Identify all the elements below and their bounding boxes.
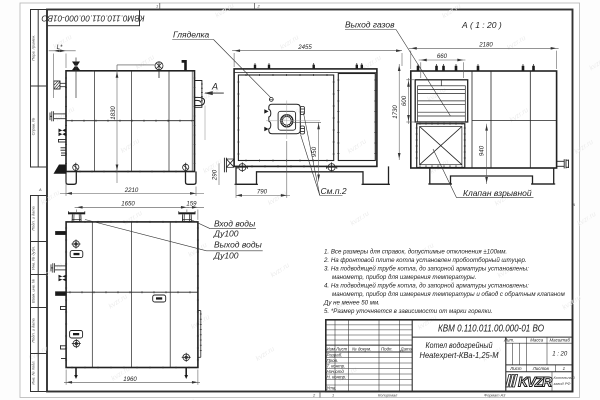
svg-text:290: 290 — [211, 169, 218, 181]
svg-text:660: 660 — [437, 53, 448, 60]
svg-text:Выход газов: Выход газов — [345, 20, 395, 30]
svg-text:См.п.2: См.п.2 — [321, 186, 347, 196]
svg-text:Справ. №: Справ. № — [31, 117, 36, 135]
svg-text:1: 1 — [332, 392, 334, 397]
svg-text:600: 600 — [401, 95, 408, 106]
svg-text:Гляделка: Гляделка — [173, 30, 210, 40]
svg-text:А: А — [211, 82, 218, 92]
svg-text:1650: 1650 — [121, 201, 135, 208]
svg-text:Перв. примен.: Перв. примен. — [31, 35, 36, 61]
svg-text:5. *Размер уточняется в зависи: 5. *Размер уточняется в зависимости от м… — [324, 308, 493, 315]
svg-text:940: 940 — [479, 145, 486, 156]
svg-text:1: 1 — [156, 4, 158, 9]
svg-text:Подп. и дата: Подп. и дата — [31, 317, 36, 342]
svg-text:159: 159 — [186, 201, 197, 208]
svg-text:Лист: Лист — [335, 346, 348, 351]
svg-text:Листов: Листов — [532, 366, 550, 371]
svg-text:Копировал: Копировал — [378, 392, 398, 397]
svg-text:2180: 2180 — [478, 42, 493, 49]
svg-text:Клапан взрывной: Клапан взрывной — [463, 188, 532, 198]
svg-text:Изм: Изм — [327, 346, 335, 351]
svg-text:А: А — [38, 187, 42, 192]
svg-text:Heatexpert-КВа-1,25-М: Heatexpert-КВа-1,25-М — [420, 351, 499, 360]
svg-text:Подп. и дата: Подп. и дата — [31, 205, 36, 230]
svg-text:Лист: Лист — [509, 366, 522, 371]
svg-text:Масса: Масса — [530, 338, 544, 343]
svg-text:Котельный: Котельный — [554, 375, 576, 380]
svg-text:КВМ 0.110.011.00.000-01 ВО: КВМ 0.110.011.00.000-01 ВО — [438, 324, 544, 335]
svg-text:Взам. инв. №: Взам. инв. № — [31, 278, 36, 303]
svg-text:манометр, прибор для измерения: манометр, прибор для измерения температу… — [332, 291, 566, 298]
svg-text:Ду не менее 50 мм.: Ду не менее 50 мм. — [323, 300, 380, 307]
svg-text:KVZR: KVZR — [518, 374, 553, 390]
svg-text:Пров.: Пров. — [327, 358, 339, 363]
svg-text:Ду100: Ду100 — [213, 228, 239, 238]
svg-text:Нач.отд: Нач.отд — [327, 369, 345, 374]
svg-text:Инв. № дубл.: Инв. № дубл. — [31, 246, 36, 270]
svg-text:Лит.: Лит. — [503, 338, 514, 343]
svg-text:Инв. № подл.: Инв. № подл. — [31, 360, 36, 384]
svg-text:завод РФ: завод РФ — [553, 381, 571, 386]
svg-text:№ докум.: № докум. — [352, 346, 371, 351]
svg-text:Подп.: Подп. — [381, 346, 393, 351]
svg-text:Вход воды: Вход воды — [214, 218, 256, 228]
svg-text:Котел водогрейный: Котел водогрейный — [426, 341, 494, 350]
svg-text:Формат А3: Формат А3 — [484, 392, 506, 397]
svg-text:1730: 1730 — [392, 105, 399, 119]
svg-text:Н. контр.: Н. контр. — [327, 375, 347, 380]
svg-text:манометр, прибор для измерения: манометр, прибор для измерения температу… — [332, 274, 476, 281]
svg-text:1 : 20: 1 : 20 — [552, 352, 568, 358]
svg-text:Выход воды: Выход воды — [214, 239, 263, 249]
svg-text:L*: L* — [57, 44, 63, 51]
svg-text:Утв.: Утв. — [327, 386, 337, 391]
svg-text:А ( 1 : 20 ): А ( 1 : 20 ) — [461, 20, 502, 30]
svg-text:1. Все размеры для справок, до: 1. Все размеры для справок, допустимые о… — [324, 249, 507, 256]
svg-text:Масштаб: Масштаб — [549, 338, 570, 343]
svg-text:1830: 1830 — [110, 106, 117, 120]
svg-text:Дата: Дата — [400, 346, 413, 351]
svg-text:2455: 2455 — [297, 44, 312, 51]
svg-text:4. На подводящей трубе котла,: 4. На подводящей трубе котла, до запорно… — [324, 283, 529, 290]
svg-text:1960: 1960 — [123, 376, 137, 383]
svg-text:790: 790 — [257, 189, 268, 196]
svg-text:КВМ0.110.011.00.000-01ВО: КВМ0.110.011.00.000-01ВО — [41, 13, 145, 22]
svg-text:Ду100: Ду100 — [213, 250, 239, 260]
svg-text:2210: 2210 — [124, 187, 139, 194]
svg-text:2. На фронтовой плите котла ус: 2. На фронтовой плите котла установлен п… — [323, 257, 527, 264]
svg-text:Разраб.: Разраб. — [327, 353, 343, 358]
svg-text:Т. контр.: Т. контр. — [327, 364, 346, 369]
svg-text:3. На подводящей трубе котла,: 3. На подводящей трубе котла, до запорно… — [324, 266, 529, 273]
svg-text:А: А — [572, 202, 576, 207]
